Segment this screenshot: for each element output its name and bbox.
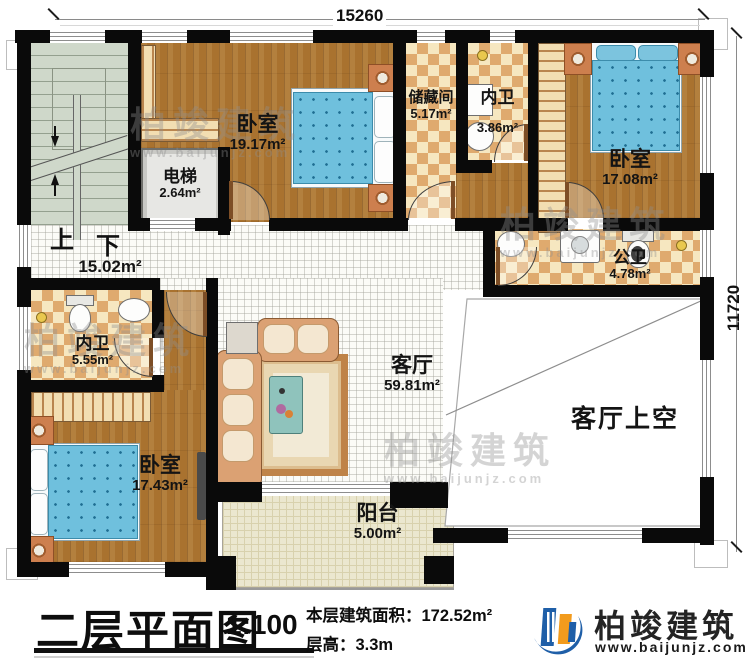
title-underline bbox=[34, 648, 314, 653]
plan-scale: 1:100 bbox=[226, 609, 298, 641]
wall bbox=[17, 562, 69, 577]
door-leaf bbox=[149, 338, 153, 376]
plan-area-line: 本层建筑面积：172.52m² bbox=[306, 602, 492, 626]
room-area: 17.43m² bbox=[105, 478, 215, 495]
wall bbox=[642, 528, 714, 543]
window bbox=[417, 30, 445, 43]
room-name: 客厅 bbox=[372, 354, 452, 378]
wall bbox=[603, 218, 714, 231]
room-name: 卧室 bbox=[195, 113, 320, 137]
wall bbox=[433, 528, 508, 543]
room-area: 59.81m² bbox=[372, 378, 452, 395]
plan-height-value: 3.3m bbox=[356, 636, 394, 654]
bed-pillow bbox=[30, 493, 48, 535]
window bbox=[700, 360, 714, 477]
plan-area-label: 本层建筑面积： bbox=[306, 607, 422, 625]
brand-url: www.baijunjz.com bbox=[595, 639, 748, 655]
wall bbox=[445, 30, 490, 43]
bed-pillow bbox=[638, 45, 678, 61]
wall bbox=[483, 285, 714, 297]
room-area: 5.00m² bbox=[330, 526, 425, 543]
plan-area-value: 172.52m² bbox=[422, 607, 493, 625]
window bbox=[17, 307, 31, 370]
room-name: 内卫 bbox=[55, 334, 130, 353]
window bbox=[142, 30, 187, 43]
sofa-cushion bbox=[222, 430, 254, 462]
wall bbox=[515, 30, 714, 43]
room-name: 卧室 bbox=[570, 148, 690, 172]
plan-height-label: 层高： bbox=[306, 636, 356, 654]
sofa-cushion bbox=[297, 324, 329, 354]
stair-down-label: 下 bbox=[96, 226, 120, 261]
sofa-cushion bbox=[263, 324, 295, 354]
window bbox=[50, 30, 105, 43]
door-leaf bbox=[565, 182, 569, 218]
wardrobe-strip bbox=[538, 43, 566, 233]
table-flower bbox=[285, 410, 293, 418]
stair-arrow-stem bbox=[54, 184, 56, 196]
stair-arrow-stem bbox=[54, 126, 56, 138]
door-leaf bbox=[229, 181, 233, 219]
window bbox=[490, 30, 515, 43]
room-name: 客厅上空 bbox=[560, 405, 690, 433]
stair-rail bbox=[73, 95, 81, 240]
wall bbox=[456, 160, 492, 173]
sofa-cushion bbox=[222, 394, 254, 426]
room-area: 17.08m² bbox=[570, 172, 690, 189]
window bbox=[700, 230, 714, 277]
room-label-elevator: 电梯 2.64m² bbox=[135, 167, 225, 201]
wall bbox=[700, 30, 714, 77]
wall bbox=[269, 218, 408, 231]
room-label-bath-top: 内卫 3.86m² bbox=[455, 88, 540, 136]
plan-height-line: 层高：3.3m bbox=[306, 631, 393, 655]
room-area: 19.17m² bbox=[195, 137, 320, 154]
sofa-cushion bbox=[222, 358, 254, 390]
room-name: 电梯 bbox=[135, 167, 225, 186]
brand-logo-icon bbox=[524, 598, 588, 662]
window bbox=[230, 30, 313, 43]
wall bbox=[31, 380, 164, 392]
wall bbox=[17, 30, 31, 225]
room-name: 公卫 bbox=[585, 248, 675, 267]
nightstand bbox=[564, 43, 592, 75]
room-label-bedroom-tl: 卧室 19.17m² bbox=[195, 113, 320, 153]
wall bbox=[187, 30, 230, 43]
toilet bbox=[69, 304, 91, 332]
wall bbox=[152, 290, 164, 338]
balcony-rail bbox=[222, 588, 454, 590]
wall bbox=[165, 562, 208, 577]
room-area: 3.86m² bbox=[455, 121, 540, 136]
room-label-bedroom-bl: 卧室 17.43m² bbox=[105, 454, 215, 494]
sink bbox=[118, 298, 150, 322]
room-label-living: 客厅 59.81m² bbox=[372, 354, 452, 394]
light-fixture bbox=[36, 312, 47, 323]
window bbox=[508, 528, 642, 543]
coffee-table bbox=[269, 376, 303, 434]
window bbox=[69, 562, 165, 577]
room-area: 5.55m² bbox=[55, 353, 130, 368]
room-name: 卧室 bbox=[105, 454, 215, 478]
room-label-balcony: 阳台 5.00m² bbox=[330, 502, 425, 542]
wall bbox=[17, 370, 31, 562]
light-fixture bbox=[477, 50, 488, 61]
balcony-sliding-door bbox=[262, 482, 390, 496]
room-label-bath-public: 公卫 4.78m² bbox=[585, 248, 675, 282]
bed-mattress bbox=[592, 60, 680, 151]
floor-plan-page: 卧室 19.17m² 电梯 2.64m² 储藏间 5.17m² 内卫 3.86m… bbox=[0, 0, 750, 666]
wall bbox=[206, 278, 218, 562]
bed-pillow bbox=[30, 449, 48, 491]
title-underline-thin bbox=[34, 656, 314, 658]
door-leaf bbox=[451, 181, 455, 219]
wall bbox=[17, 278, 160, 290]
window bbox=[17, 225, 31, 267]
wall bbox=[313, 30, 417, 43]
dimension-top-value: 15260 bbox=[333, 6, 386, 26]
side-table bbox=[226, 322, 258, 354]
room-name: 内卫 bbox=[455, 88, 540, 107]
wall bbox=[538, 218, 568, 231]
wall bbox=[528, 43, 538, 231]
room-label-bedroom-tr: 卧室 17.08m² bbox=[570, 148, 690, 188]
wall bbox=[393, 43, 406, 222]
room-label-bath-left: 内卫 5.55m² bbox=[55, 334, 130, 368]
dimension-right-value: 11720 bbox=[724, 275, 744, 341]
dimension-tick bbox=[47, 8, 59, 20]
balcony-pillar bbox=[424, 556, 454, 584]
wall bbox=[455, 218, 538, 231]
room-area: 4.78m² bbox=[585, 267, 675, 282]
table-decor bbox=[279, 388, 285, 394]
room-name: 阳台 bbox=[330, 502, 425, 526]
room-area: 2.64m² bbox=[135, 186, 225, 201]
light-fixture bbox=[676, 240, 687, 251]
room-label-living-void: 客厅上空 bbox=[560, 405, 690, 433]
window bbox=[700, 77, 714, 173]
elevator-door bbox=[150, 218, 195, 231]
bed-pillow bbox=[596, 45, 636, 61]
door-leaf bbox=[496, 247, 500, 285]
stair-up-label: 上 bbox=[50, 220, 74, 255]
door-leaf bbox=[203, 292, 207, 336]
